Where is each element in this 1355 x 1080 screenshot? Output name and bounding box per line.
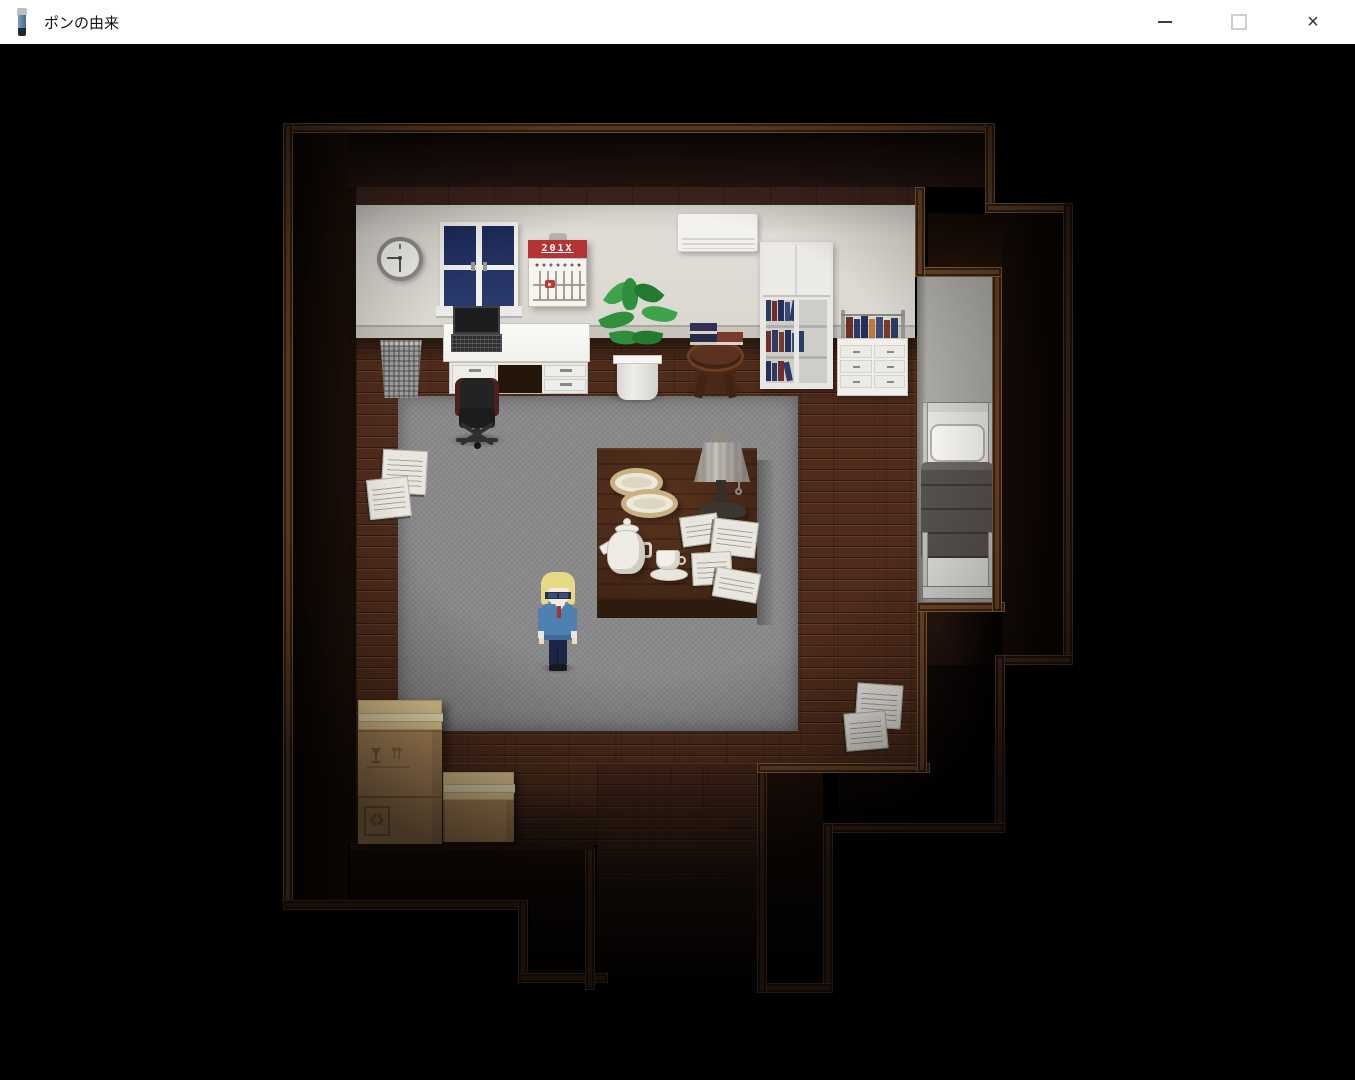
- trim-bottom-right-h: [828, 823, 1005, 833]
- dresser-handle: [853, 366, 860, 368]
- maximize-icon: [1231, 14, 1247, 30]
- dresser-handle: [887, 351, 894, 353]
- app-window: ポンの由来 ×: [0, 0, 1355, 1080]
- bookshelf-door-divider: [795, 245, 797, 295]
- trim-bottom-left-v: [518, 900, 528, 983]
- bookshelf: [760, 242, 833, 389]
- bookshelf-interior: [763, 297, 830, 386]
- plate-center: [633, 498, 666, 509]
- plate-center: [621, 477, 652, 488]
- window-handle-right: [483, 262, 487, 271]
- trim-right-upper: [985, 123, 995, 213]
- minimize-icon: [1158, 21, 1172, 23]
- desk-drawer-bottom-right: [544, 379, 586, 391]
- box-tape: [444, 784, 515, 793]
- lamp-chain-ring: [735, 488, 742, 495]
- maximize-button[interactable]: [1202, 0, 1276, 44]
- box-tape: [359, 713, 443, 722]
- bed-foot-rail: [922, 586, 994, 599]
- table-shadow: [757, 460, 775, 625]
- trim-right-step-h: [995, 655, 1073, 665]
- dresser-handle: [853, 381, 860, 383]
- bed-blanket: [921, 462, 993, 560]
- wastebasket: [378, 340, 424, 398]
- paper-text-lines: [849, 717, 883, 746]
- laptop-keyboard: [451, 334, 502, 352]
- corridor-darkness: [597, 763, 757, 997]
- paper-text-lines: [372, 482, 407, 513]
- dining-table-front: [597, 600, 757, 618]
- dark-band-below-boxes: [350, 842, 595, 902]
- wall-clock: [377, 237, 423, 281]
- trim-top: [283, 123, 995, 133]
- character-glasses-lens: [559, 593, 568, 598]
- box-stack-tall: ⇈ ♻: [358, 700, 442, 842]
- calendar-highlight-dot: [548, 283, 551, 286]
- office-chair-caster: [474, 442, 481, 449]
- wall-top-beam: [356, 187, 915, 205]
- calendar-highlight-date: [545, 280, 555, 288]
- dresser: [837, 338, 908, 396]
- character-glasses: [545, 592, 571, 599]
- floor-paper: [843, 710, 888, 752]
- character-shoes: [549, 664, 567, 671]
- window-handle-left: [471, 262, 475, 271]
- trim-corridor-right-foot: [757, 983, 833, 993]
- window-title: ポンの由来: [44, 12, 119, 33]
- trim-room-top-right: [915, 187, 925, 277]
- character-hand-right: [572, 638, 577, 644]
- flashlight-icon: [16, 8, 28, 36]
- plate: [621, 489, 678, 518]
- minimize-button[interactable]: [1128, 0, 1202, 44]
- plant-pot: [617, 364, 658, 400]
- trim-floor-right: [917, 605, 927, 773]
- lamp-chain: [738, 474, 740, 488]
- bookshelf-top-doors: [763, 245, 830, 297]
- clock-tick-12: [399, 244, 401, 249]
- paper-text-lines: [716, 524, 754, 552]
- character-arm-right: [571, 608, 577, 638]
- dresser-drawer: [874, 375, 905, 388]
- flashlight-icon-base: [18, 28, 26, 36]
- calendar: 201X: [528, 240, 587, 307]
- dresser-handle: [853, 351, 860, 353]
- lamp-cap: [712, 432, 730, 440]
- fragile-icon: [370, 748, 382, 764]
- dark-strip-right-of-corridor: [767, 773, 823, 993]
- ac-vents: [682, 238, 755, 249]
- trim-bottom-right-v: [823, 823, 833, 993]
- box-short: [443, 772, 514, 842]
- trim-alcove-right: [992, 270, 1002, 612]
- dark-gap-right: [1002, 213, 1063, 665]
- character-pants: [549, 640, 567, 664]
- window-mullion-h: [444, 265, 514, 270]
- dark-gap-top: [293, 133, 985, 187]
- box-body-upper: ⇈: [358, 730, 442, 796]
- desk-drawer-handle: [560, 369, 572, 372]
- close-icon: ×: [1307, 12, 1319, 32]
- close-button[interactable]: ×: [1276, 0, 1350, 44]
- plant-pot-rim: [613, 355, 662, 364]
- box-top: [358, 700, 442, 730]
- character-leg-gap: [557, 646, 558, 664]
- dresser-drawer: [840, 360, 872, 373]
- flashlight-icon-head: [17, 8, 27, 15]
- box-body-lower: ♻: [358, 796, 442, 844]
- dresser-drawer: [840, 375, 872, 388]
- player-character: [536, 572, 578, 676]
- paper-text-lines: [685, 519, 715, 541]
- dresser-drawer: [874, 360, 905, 373]
- trim-right-step-v: [995, 655, 1005, 833]
- trim-left: [283, 123, 293, 910]
- flashlight-icon-body: [18, 15, 26, 28]
- book-on-table: [690, 334, 717, 345]
- character-tie: [557, 606, 561, 618]
- trim-corridor-right: [757, 765, 767, 993]
- box-mark-line: [366, 766, 410, 768]
- desk-drawer-handle: [469, 369, 481, 372]
- fragile-glass-base: [372, 761, 380, 763]
- book-on-table: [690, 323, 717, 334]
- laptop-screen: [453, 306, 500, 334]
- game-canvas[interactable]: 201X: [0, 44, 1355, 1080]
- room-left-edge: [348, 187, 356, 845]
- character-arm-left: [538, 608, 544, 638]
- desk-drawer-top-right: [544, 365, 586, 377]
- trim-bottom-left-h: [283, 900, 528, 910]
- clock-center: [398, 256, 402, 260]
- box-body: [443, 800, 514, 842]
- recycle-icon: ♻: [364, 806, 390, 836]
- corridor-floor: [597, 763, 757, 997]
- trim-corridor-left: [585, 845, 595, 990]
- trim-floor-bottom-right: [757, 763, 930, 773]
- clock-minute-hand: [399, 258, 401, 272]
- dresser-handle: [887, 381, 894, 383]
- bed-post-left-bottom: [922, 532, 928, 590]
- dark-gap-above-alcove: [928, 213, 1002, 267]
- bed-pillow: [930, 424, 985, 462]
- calendar-header: 201X: [528, 240, 587, 258]
- teapot-knob: [623, 518, 631, 526]
- calendar-grid: [528, 258, 587, 307]
- book-on-table: [717, 332, 743, 345]
- trim-top-right-step: [985, 203, 1073, 213]
- desk-kneehole: [498, 365, 542, 393]
- air-conditioner: [677, 213, 758, 252]
- box-top: [443, 772, 514, 800]
- character-glasses-lens: [548, 593, 557, 598]
- desk-drawer-handle: [560, 383, 572, 386]
- trim-far-right: [1063, 203, 1073, 665]
- floor-paper: [366, 476, 412, 520]
- teacup: [656, 550, 680, 570]
- dark-gap-left: [293, 133, 348, 900]
- teapot-body: [607, 530, 645, 574]
- dresser-drawer: [840, 345, 872, 358]
- paper-text-lines: [718, 573, 756, 597]
- dresser-drawer: [874, 345, 905, 358]
- window-frame: [440, 222, 518, 312]
- bookshelf-glass-frame: [763, 297, 830, 386]
- dresser-handle: [887, 366, 894, 368]
- window-titlebar[interactable]: ポンの由来 ×: [0, 0, 1355, 45]
- trim-alcove-top: [920, 267, 1002, 277]
- character-hand-left: [539, 638, 544, 644]
- arrows-up-icon: ⇈: [390, 744, 403, 763]
